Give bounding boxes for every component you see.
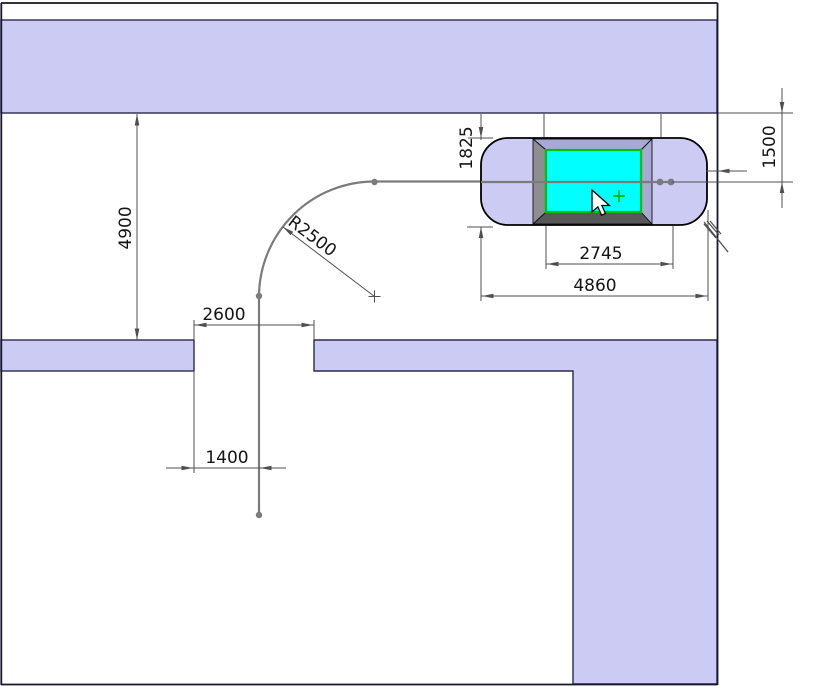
dim-1400-label[interactable]: 1400 bbox=[205, 448, 248, 468]
radius-annotation: R2500 bbox=[283, 212, 381, 302]
car-windshield-bottom[interactable] bbox=[533, 212, 652, 224]
path-endpoint-dot[interactable] bbox=[256, 512, 262, 518]
dimension-corridor-height: 4900 bbox=[116, 114, 139, 340]
dim-1825-arrow-up bbox=[479, 227, 484, 238]
wall-bottom-left[interactable] bbox=[1, 340, 194, 371]
car-windshield-top[interactable] bbox=[533, 139, 652, 150]
dim-2745-arrow-right bbox=[661, 262, 673, 267]
dimension-wheelbase: 2745 bbox=[546, 226, 673, 269]
dim-1825-label[interactable]: 1825 bbox=[457, 126, 477, 169]
dim-4860-arrow-left bbox=[482, 294, 494, 299]
dim-2745-arrow-left bbox=[547, 262, 559, 267]
dim-2745-label[interactable]: 2745 bbox=[579, 244, 622, 264]
front-clearance-pointer bbox=[706, 169, 747, 174]
dim-1825-arrow-down bbox=[479, 127, 484, 138]
dim-4900-label[interactable]: 4900 bbox=[116, 206, 136, 249]
dim-2600-arrow-right bbox=[302, 323, 314, 328]
leader-hatch-strokes bbox=[704, 221, 721, 238]
dim-r2500-label[interactable]: R2500 bbox=[284, 212, 340, 261]
wall-top[interactable] bbox=[1, 20, 717, 113]
dim-2600-label[interactable]: 2600 bbox=[202, 305, 245, 325]
dim-4900-arrow-down bbox=[135, 329, 140, 341]
dim-4860-label[interactable]: 4860 bbox=[573, 276, 616, 296]
dim-1400-arrow-right bbox=[260, 466, 272, 471]
dimension-gap-width: 2600 bbox=[194, 305, 314, 340]
dim-1500-label[interactable]: 1500 bbox=[760, 125, 780, 168]
wall-right-l-shape[interactable] bbox=[314, 340, 717, 684]
wheel-extension-stubs bbox=[481, 114, 661, 140]
dim-1500-arrow-down bbox=[780, 102, 785, 113]
cad-viewport: 4900 2600 1400 R2500 1825 bbox=[0, 0, 818, 687]
dimension-lane-offset: 1400 bbox=[166, 371, 286, 473]
car-centerline-dot-1 bbox=[657, 179, 664, 186]
dim-1400-arrow-left bbox=[182, 466, 194, 471]
dim-4860-arrow-right bbox=[696, 294, 708, 299]
dim-4900-arrow-up bbox=[135, 114, 140, 126]
drawing-canvas: 4900 2600 1400 R2500 1825 bbox=[0, 0, 818, 687]
dim-1500-arrow-up bbox=[780, 182, 785, 193]
path-tangent-dot-upper[interactable] bbox=[371, 179, 377, 185]
path-tangent-dot-lower[interactable] bbox=[256, 293, 262, 299]
arc-center-cross bbox=[369, 291, 381, 303]
front-clearance-arrow bbox=[718, 169, 730, 174]
walls bbox=[1, 20, 717, 684]
